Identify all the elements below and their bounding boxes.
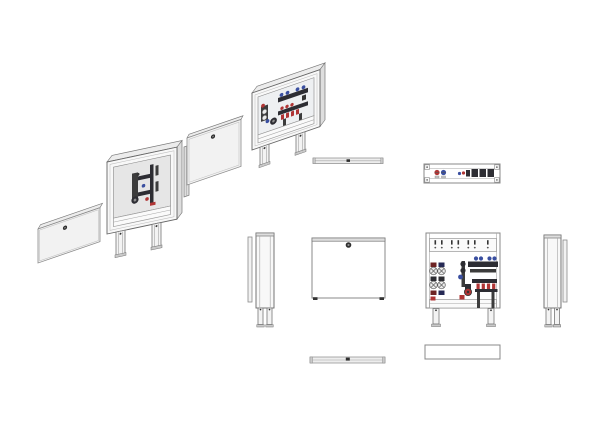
strip-endcap-right — [382, 357, 385, 363]
side-leg — [553, 308, 560, 327]
meter-base-bar — [475, 289, 498, 292]
blue-ball-valve — [458, 275, 463, 280]
dark-cap — [439, 277, 445, 282]
corner-screw — [426, 166, 428, 168]
flow-meter — [477, 284, 480, 290]
slot-group — [487, 240, 489, 248]
red-cap — [431, 263, 437, 268]
drawing-canvas — [0, 0, 600, 425]
bottom-view-outline — [425, 345, 500, 359]
actuator-block — [480, 169, 487, 177]
pipe-down — [492, 292, 495, 308]
front-view-closed — [312, 238, 385, 300]
cabinet-leg-right — [151, 222, 162, 250]
corner-screw — [496, 166, 498, 168]
blue-actuator-cap — [487, 256, 491, 260]
mid-manifold-bar — [470, 269, 496, 273]
flow-meter — [296, 109, 299, 115]
strip-endcap-left — [310, 357, 313, 363]
side-view-right — [544, 235, 567, 327]
flow-meter — [487, 284, 490, 290]
valve-base — [435, 176, 439, 178]
red-dot — [462, 171, 465, 174]
side-body — [256, 233, 274, 308]
side-leg — [545, 308, 552, 327]
door-top-band — [312, 238, 385, 241]
pump-screw — [467, 291, 469, 293]
strip-endcap-left — [313, 158, 315, 164]
blue-cap — [439, 263, 445, 268]
red-valve — [460, 295, 465, 300]
red-cap — [431, 291, 437, 296]
side-leg — [266, 308, 273, 327]
side-body — [544, 235, 561, 308]
flow-meter — [291, 111, 294, 117]
door-top-view — [310, 357, 385, 363]
cabinet-bottom-view — [425, 345, 500, 359]
corner-screw — [496, 179, 498, 181]
assembled-cabinet-isometric — [252, 63, 325, 170]
cover-frame-panel-isometric — [187, 116, 243, 185]
cabinet-right-face — [320, 63, 325, 127]
flow-meter — [286, 112, 289, 118]
frame-cabinet-isometric — [107, 141, 182, 260]
front-leg-right — [487, 309, 496, 327]
exploded-isometric-view — [38, 63, 325, 263]
blue-dot — [458, 172, 461, 175]
pipe-down — [477, 292, 480, 308]
cabinet-right-face — [177, 141, 182, 220]
foot-right — [380, 297, 385, 300]
front-leg-left — [432, 309, 441, 327]
valve-base — [442, 176, 446, 178]
lock-icon — [347, 159, 351, 162]
top-mounting-rail — [430, 239, 497, 252]
dark-cap — [431, 277, 437, 282]
actuator-block — [466, 170, 470, 177]
actuator-block — [472, 169, 479, 177]
side-top-cap — [544, 235, 561, 238]
cabinet-leg-right — [295, 131, 306, 155]
side-view-left — [248, 233, 274, 327]
technical-drawing — [0, 0, 600, 425]
corner-screw — [426, 179, 428, 181]
lock-keyhole — [347, 244, 349, 246]
manifold-side-block-a — [156, 165, 159, 176]
door-edge-panel — [563, 240, 567, 302]
door-panel-isometric — [38, 203, 103, 263]
door-edge-panel — [248, 237, 252, 302]
manifold-vertical-pipe — [150, 164, 154, 205]
side-top-cap — [256, 233, 274, 236]
cabinet-top-view-open — [424, 164, 500, 183]
manifold-side-block-b — [156, 181, 159, 192]
red-end-valve — [431, 297, 436, 301]
cover-face — [187, 119, 241, 185]
blue-cap — [439, 291, 445, 296]
side-leg — [257, 308, 264, 327]
blue-actuator-cap — [474, 256, 478, 260]
cabinet-leg-left — [115, 230, 126, 258]
cover-top-view — [313, 158, 383, 164]
flow-meter — [492, 284, 495, 290]
fitting — [460, 261, 465, 266]
actuator-block — [488, 169, 495, 177]
lock-icon — [346, 358, 350, 361]
flow-meter — [482, 284, 485, 290]
cabinet-leg-left — [259, 144, 270, 168]
strip-endcap-right — [381, 158, 383, 164]
lower-manifold-bar — [472, 279, 497, 283]
flow-meter — [281, 114, 284, 120]
fitting — [460, 268, 465, 273]
upper-manifold-bar — [468, 262, 498, 268]
foot-left — [313, 297, 318, 300]
front-view-open — [426, 233, 500, 327]
blue-actuator-cap — [492, 256, 496, 260]
blue-actuator-cap — [479, 256, 483, 260]
pump-line-block — [132, 172, 138, 199]
